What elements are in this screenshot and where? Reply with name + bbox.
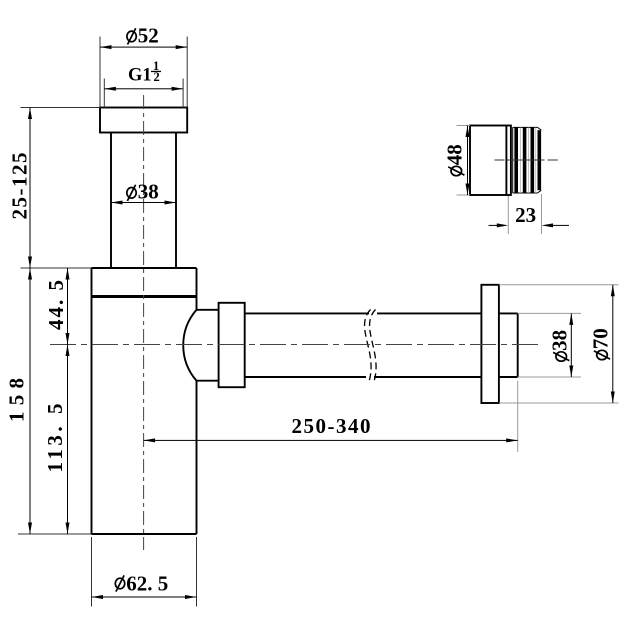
svg-text:23: 23 xyxy=(515,203,536,227)
svg-text:G1: G1 xyxy=(128,66,152,86)
svg-text:62. 5: 62. 5 xyxy=(126,572,168,596)
svg-text:48: 48 xyxy=(443,144,467,165)
svg-text:38: 38 xyxy=(138,180,159,204)
svg-text:25-125: 25-125 xyxy=(8,153,32,220)
svg-text:38: 38 xyxy=(548,330,572,351)
svg-text:113. 5: 113. 5 xyxy=(43,404,67,473)
svg-text:250-340: 250-340 xyxy=(292,414,371,438)
svg-text:52: 52 xyxy=(138,23,159,47)
svg-text:70: 70 xyxy=(588,328,612,349)
svg-text:158: 158 xyxy=(5,378,29,422)
svg-text:44. 5: 44. 5 xyxy=(44,280,68,330)
